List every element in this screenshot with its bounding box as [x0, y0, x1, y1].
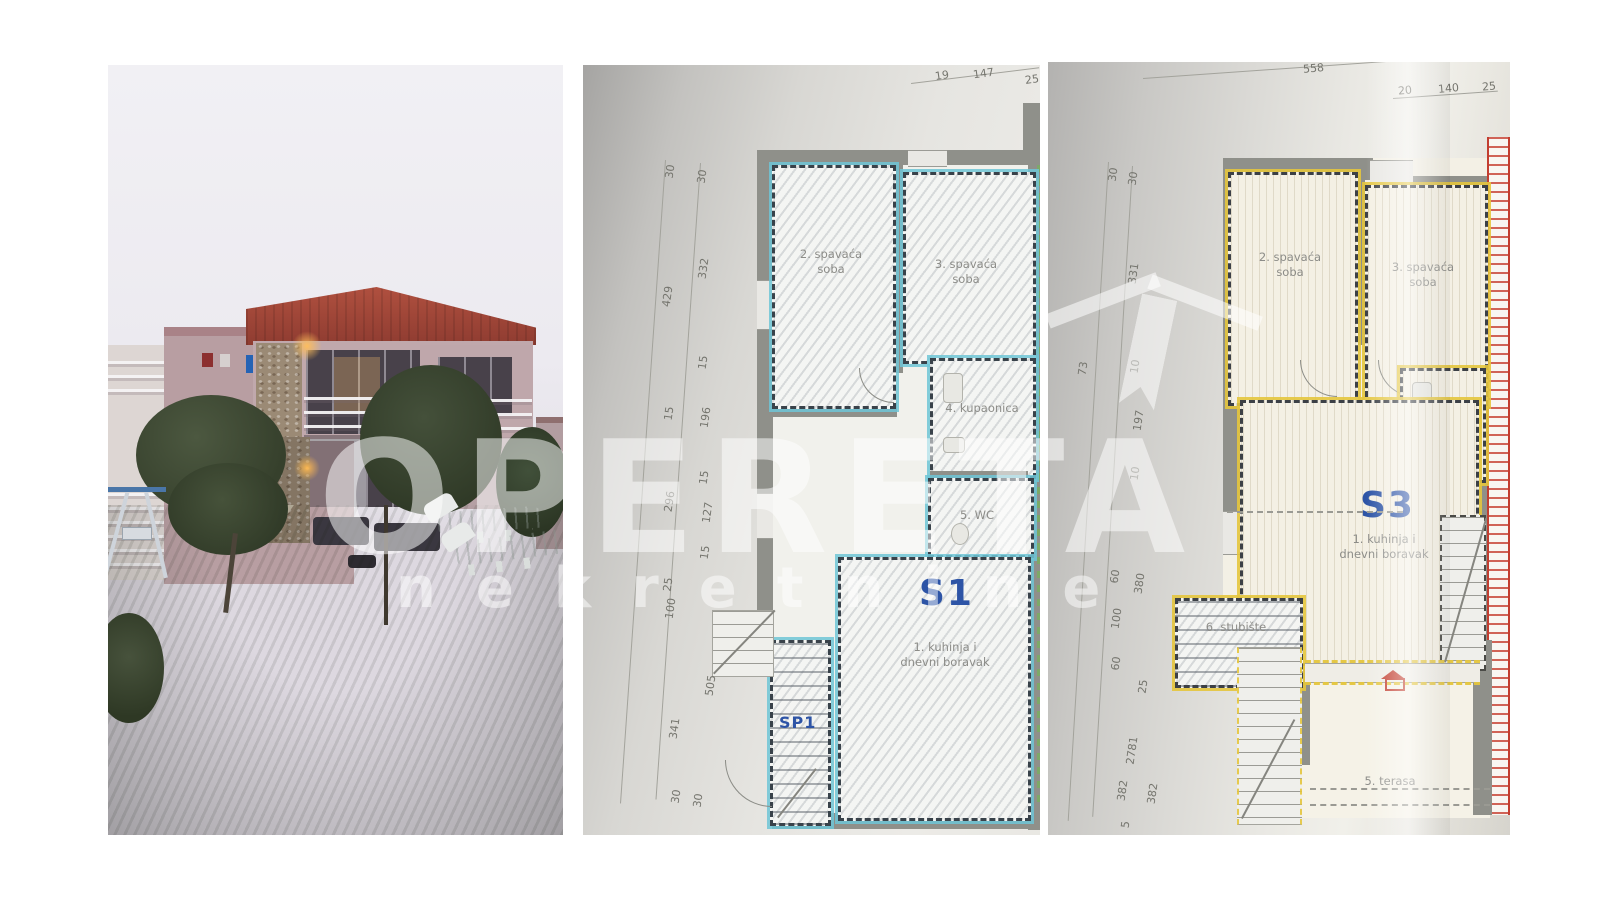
listing-collage: 2. spavaća soba 3. spavaća soba 4. kupao… [0, 0, 1600, 900]
dimension-label: 25 [1024, 72, 1040, 87]
dimension-label: 19 [934, 68, 950, 83]
dimension-label: 558 [1302, 62, 1324, 76]
swing-crossbar [108, 487, 166, 492]
wall-lamp-glow-lower [294, 455, 320, 481]
dimension-label: 147 [972, 66, 995, 82]
paper-fold-highlight [1366, 62, 1450, 835]
window-shutter-white [220, 354, 230, 367]
watermark-tagline: nekretnine [396, 556, 1140, 621]
wall-lamp-glow-upper [292, 331, 322, 361]
watermark-brand: OPERETA [318, 420, 1197, 576]
olive-tree-left-lower [168, 463, 288, 555]
window-shutter-red [202, 353, 213, 367]
dimension-label: 25 [1481, 79, 1496, 93]
balustrade [108, 361, 164, 403]
swing-seat [122, 527, 152, 540]
